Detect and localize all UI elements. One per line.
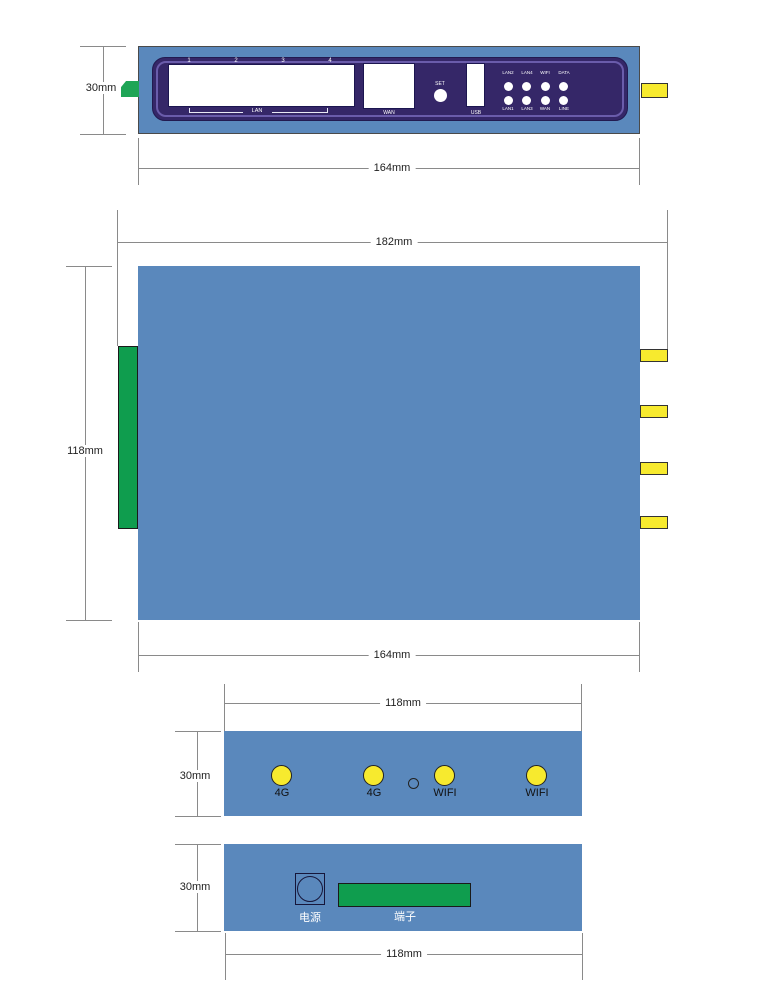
ant-height-tick-bottom — [175, 816, 221, 817]
antenna-connector — [640, 462, 668, 475]
led-indicator — [522, 82, 531, 91]
antenna-port-wifi-icon — [526, 765, 547, 786]
led-label-lan2: LAN2 — [502, 71, 513, 76]
ant-width-ext-left — [224, 684, 225, 731]
front-height-dim-tick-top — [80, 46, 126, 47]
rear-height-dim-label: 30mm — [175, 881, 216, 893]
antenna-port-label: 4G — [367, 787, 382, 799]
antenna-stub-front — [641, 83, 668, 98]
antenna-port-label: WIFI — [525, 787, 548, 799]
top-height-dim-line — [85, 266, 86, 620]
rear-view: 30mm 电源 端子 118mm — [0, 844, 780, 982]
led-label-wifi: WIFI — [540, 71, 550, 76]
set-button-label: SET — [435, 82, 445, 87]
top-outer-ext-left — [117, 210, 118, 346]
lan-bracket-right — [272, 112, 328, 113]
led-label-lan4: LAN4 — [521, 71, 532, 76]
set-button — [434, 89, 447, 102]
led-indicator — [504, 82, 513, 91]
rear-height-tick-top — [175, 844, 221, 845]
top-outer-ext-right — [667, 210, 668, 349]
front-height-dim-label: 30mm — [81, 82, 122, 94]
usb-port-label: USB — [471, 111, 481, 116]
usb-port — [466, 63, 485, 107]
led-label-lan3: LAN3 — [521, 107, 532, 112]
ant-height-dim-label: 30mm — [175, 770, 216, 782]
top-height-dim-label: 118mm — [62, 445, 108, 457]
led-indicator — [541, 96, 550, 105]
led-label-wan: WAN — [540, 107, 550, 112]
ant-width-ext-right — [581, 684, 582, 731]
reset-hole-icon — [408, 778, 419, 789]
lan-group-label: LAN — [252, 109, 263, 115]
power-jack-circle-icon — [297, 876, 323, 902]
terminal-label: 端子 — [394, 911, 416, 923]
led-indicator — [522, 96, 531, 105]
rear-height-tick-bottom — [175, 931, 221, 932]
front-view: 30mm 1 2 3 4 LAN WAN SET USB — [0, 0, 780, 200]
led-indicator — [559, 96, 568, 105]
top-body-dim-label: 164mm — [369, 649, 416, 661]
top-height-tick-bottom — [66, 620, 112, 621]
terminal-connector-top — [118, 346, 138, 529]
lan-bracket-left — [189, 112, 243, 113]
device-body-top — [138, 266, 640, 620]
front-width-ext-left — [138, 138, 139, 185]
power-label: 电源 — [299, 912, 321, 924]
rear-width-dim-label: 118mm — [381, 948, 427, 960]
top-outer-dim-label: 182mm — [371, 236, 418, 248]
lan-bracket-tick-right — [327, 108, 328, 112]
technical-drawing-canvas: 30mm 1 2 3 4 LAN WAN SET USB — [0, 0, 780, 982]
antenna-port-4g-icon — [363, 765, 384, 786]
led-indicator — [559, 82, 568, 91]
top-height-tick-top — [66, 266, 112, 267]
front-width-ext-right — [639, 138, 640, 185]
led-label-data: DATA — [558, 71, 569, 76]
antenna-port-label: WIFI — [433, 787, 456, 799]
antenna-port-wifi-icon — [434, 765, 455, 786]
antenna-connector — [640, 516, 668, 529]
top-body-ext-left — [138, 622, 139, 672]
led-indicator — [541, 82, 550, 91]
top-view: 182mm 118mm 164mm — [0, 195, 780, 680]
antenna-side-view: 118mm 30mm 4G 4G WIFI WIFI — [0, 680, 780, 820]
led-label-line: LINE — [559, 107, 569, 112]
antenna-connector — [640, 405, 668, 418]
rear-width-ext-left — [225, 933, 226, 980]
antenna-port-4g-icon — [271, 765, 292, 786]
lan-port-block — [168, 64, 355, 107]
rear-width-ext-right — [582, 933, 583, 980]
led-label-lan1: LAN1 — [502, 107, 513, 112]
front-width-dim-label: 164mm — [369, 162, 416, 174]
antenna-connector — [640, 349, 668, 362]
ant-width-dim-label: 118mm — [380, 697, 426, 709]
green-connector-tab — [121, 81, 139, 97]
front-height-dim-tick-bottom — [80, 134, 126, 135]
antenna-port-label: 4G — [275, 787, 290, 799]
terminal-block — [338, 883, 471, 907]
top-body-ext-right — [639, 622, 640, 672]
wan-port-label: WAN — [383, 111, 394, 116]
lan-bracket-tick-left — [189, 108, 190, 112]
wan-port — [363, 63, 415, 109]
led-indicator — [504, 96, 513, 105]
ant-height-tick-top — [175, 731, 221, 732]
